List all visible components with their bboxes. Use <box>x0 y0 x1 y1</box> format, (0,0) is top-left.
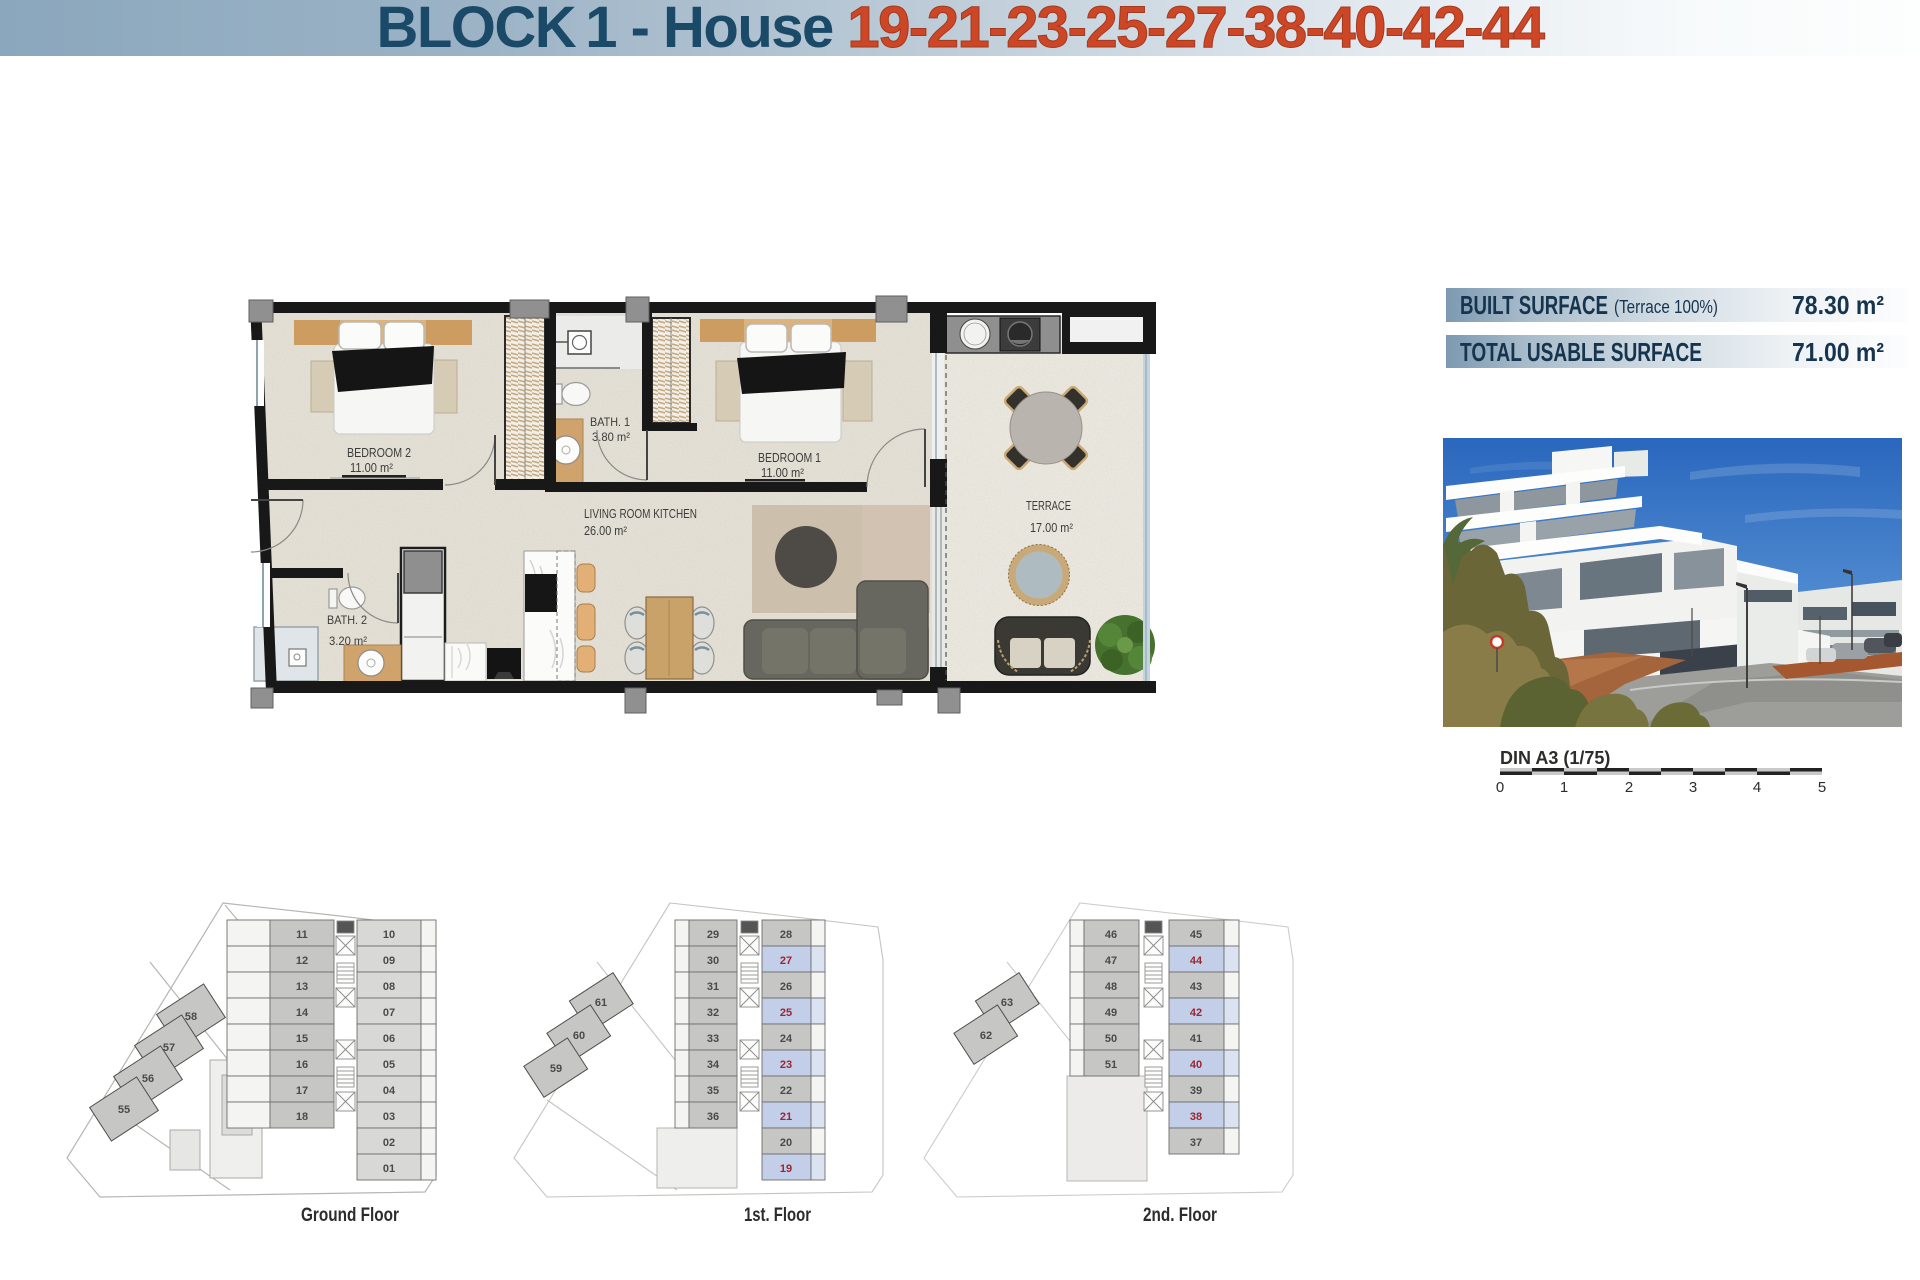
svg-text:63: 63 <box>1001 997 1013 1009</box>
svg-text:62: 62 <box>980 1030 992 1042</box>
svg-text:27: 27 <box>780 955 792 967</box>
svg-text:26: 26 <box>780 981 792 993</box>
svg-text:26.00 m²: 26.00 m² <box>584 523 628 538</box>
svg-text:19: 19 <box>780 1163 792 1175</box>
svg-text:08: 08 <box>383 981 395 993</box>
svg-text:5: 5 <box>1818 779 1826 796</box>
svg-text:11.00 m²: 11.00 m² <box>350 460 394 475</box>
svg-text:49: 49 <box>1105 1007 1117 1019</box>
svg-text:24: 24 <box>780 1033 793 1045</box>
svg-text:15: 15 <box>296 1033 308 1045</box>
svg-text:TERRACE: TERRACE <box>1026 498 1071 513</box>
svg-text:06: 06 <box>383 1033 395 1045</box>
svg-text:71.00 m²: 71.00 m² <box>1792 337 1884 367</box>
svg-text:50: 50 <box>1105 1033 1117 1045</box>
svg-text:41: 41 <box>1190 1033 1202 1045</box>
svg-text:31: 31 <box>707 981 719 993</box>
svg-text:42: 42 <box>1190 1007 1202 1019</box>
svg-text:03: 03 <box>383 1111 395 1123</box>
svg-text:45: 45 <box>1190 929 1202 941</box>
svg-text:04: 04 <box>383 1085 396 1097</box>
svg-text:11.00 m²: 11.00 m² <box>761 465 805 480</box>
svg-text:61: 61 <box>595 997 607 1009</box>
svg-text:37: 37 <box>1190 1137 1202 1149</box>
svg-text:BATH. 2: BATH. 2 <box>327 613 367 627</box>
svg-text:58: 58 <box>185 1011 197 1023</box>
svg-text:43: 43 <box>1190 981 1202 993</box>
svg-text:51: 51 <box>1105 1059 1117 1071</box>
svg-text:05: 05 <box>383 1059 395 1071</box>
svg-text:25: 25 <box>780 1007 792 1019</box>
svg-text:36: 36 <box>707 1111 719 1123</box>
svg-text:46: 46 <box>1105 929 1117 941</box>
svg-text:3.20 m²: 3.20 m² <box>329 634 367 648</box>
svg-text:23: 23 <box>780 1059 792 1071</box>
svg-text:07: 07 <box>383 1007 395 1019</box>
svg-text:LIVING ROOM KITCHEN: LIVING ROOM KITCHEN <box>584 506 697 521</box>
svg-text:13: 13 <box>296 981 308 993</box>
svg-text:DIN A3 (1/75): DIN A3 (1/75) <box>1500 748 1610 768</box>
svg-text:22: 22 <box>780 1085 792 1097</box>
svg-text:4: 4 <box>1753 779 1761 796</box>
svg-text:1: 1 <box>1560 779 1568 796</box>
svg-text:BEDROOM 1: BEDROOM 1 <box>758 450 821 465</box>
svg-text:29: 29 <box>707 929 719 941</box>
svg-text:18: 18 <box>296 1111 308 1123</box>
svg-text:BEDROOM 2: BEDROOM 2 <box>347 445 411 460</box>
svg-text:20: 20 <box>780 1137 792 1149</box>
svg-text:60: 60 <box>573 1030 585 1042</box>
svg-text:55: 55 <box>118 1104 130 1116</box>
svg-text:2nd. Floor: 2nd. Floor <box>1143 1205 1217 1226</box>
svg-text:78.30 m²: 78.30 m² <box>1792 290 1884 320</box>
svg-text:(Terrace 100%): (Terrace 100%) <box>1614 297 1718 317</box>
svg-text:01: 01 <box>383 1163 395 1175</box>
svg-text:BUILT SURFACE: BUILT SURFACE <box>1460 290 1608 320</box>
svg-text:47: 47 <box>1105 955 1117 967</box>
svg-text:40: 40 <box>1190 1059 1202 1071</box>
svg-text:09: 09 <box>383 955 395 967</box>
svg-text:16: 16 <box>296 1059 308 1071</box>
svg-text:17.00 m²: 17.00 m² <box>1030 520 1074 535</box>
svg-text:35: 35 <box>707 1085 719 1097</box>
svg-text:21: 21 <box>780 1111 792 1123</box>
svg-text:17: 17 <box>296 1085 308 1097</box>
svg-text:Ground Floor: Ground Floor <box>301 1205 399 1226</box>
svg-text:34: 34 <box>707 1059 720 1071</box>
svg-text:02: 02 <box>383 1137 395 1149</box>
svg-text:TOTAL USABLE SURFACE: TOTAL USABLE SURFACE <box>1460 337 1702 367</box>
svg-text:48: 48 <box>1105 981 1117 993</box>
svg-text:30: 30 <box>707 955 719 967</box>
svg-text:14: 14 <box>296 1007 309 1019</box>
svg-text:56: 56 <box>142 1073 154 1085</box>
svg-text:1st. Floor: 1st. Floor <box>744 1205 811 1226</box>
svg-text:33: 33 <box>707 1033 719 1045</box>
svg-text:59: 59 <box>550 1063 562 1075</box>
svg-text:44: 44 <box>1190 955 1203 967</box>
svg-text:3: 3 <box>1689 779 1697 796</box>
svg-text:0: 0 <box>1496 779 1504 796</box>
svg-text:57: 57 <box>163 1042 175 1054</box>
svg-text:28: 28 <box>780 929 792 941</box>
svg-text:BATH. 1: BATH. 1 <box>590 415 630 429</box>
svg-text:12: 12 <box>296 955 308 967</box>
svg-text:10: 10 <box>383 929 395 941</box>
svg-text:39: 39 <box>1190 1085 1202 1097</box>
svg-text:32: 32 <box>707 1007 719 1019</box>
svg-text:11: 11 <box>296 929 308 941</box>
svg-text:38: 38 <box>1190 1111 1202 1123</box>
svg-text:2: 2 <box>1625 779 1633 796</box>
